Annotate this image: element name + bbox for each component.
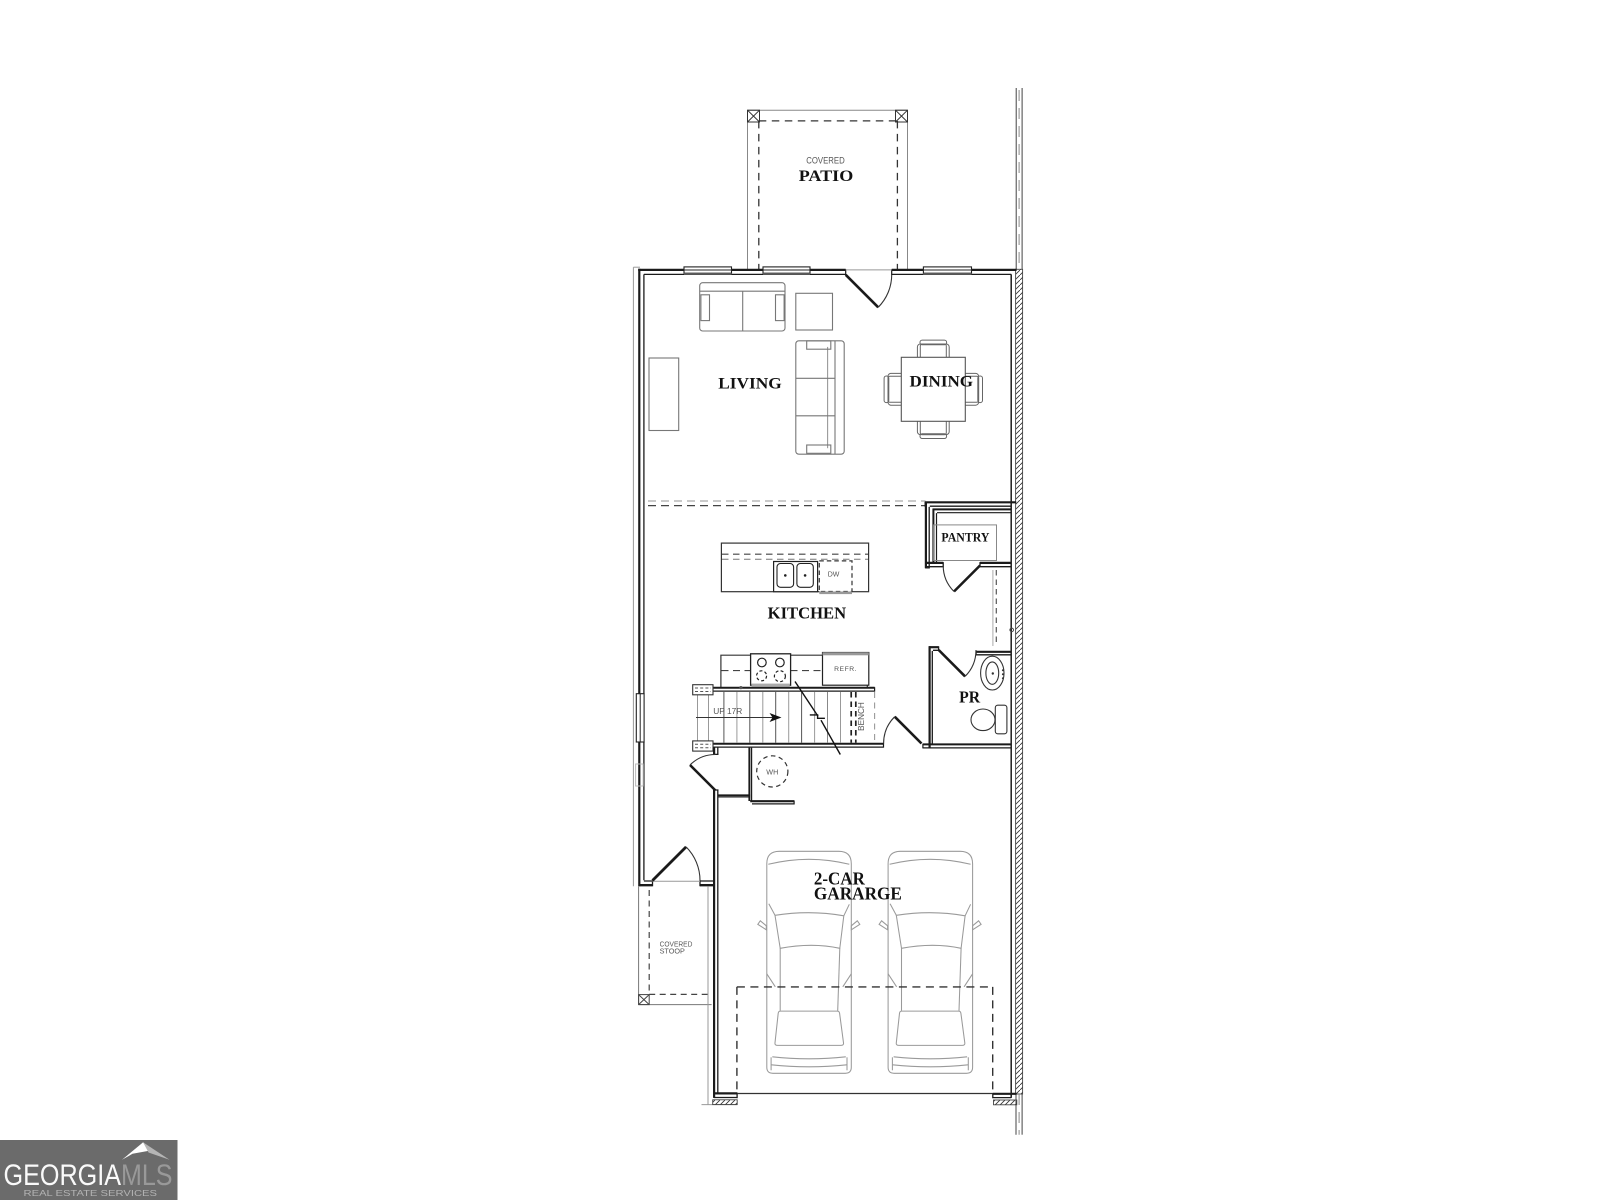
svg-text:KITCHEN: KITCHEN — [768, 604, 847, 623]
svg-text:UP 17R: UP 17R — [713, 707, 742, 716]
svg-text:PR: PR — [959, 687, 981, 706]
svg-text:REFR.: REFR. — [834, 666, 857, 673]
svg-text:PATIO: PATIO — [799, 168, 854, 185]
svg-text:BENCH: BENCH — [857, 702, 866, 731]
svg-text:DINING: DINING — [910, 374, 974, 391]
svg-text:DW: DW — [828, 572, 840, 579]
svg-text:LIVING: LIVING — [718, 376, 782, 393]
svg-text:REAL ESTATE SERVICES: REAL ESTATE SERVICES — [24, 1189, 158, 1198]
svg-text:MLS: MLS — [121, 1159, 173, 1192]
svg-text:GARARGE: GARARGE — [814, 884, 902, 904]
svg-text:GEORGIA: GEORGIA — [4, 1159, 122, 1192]
svg-text:COVERED: COVERED — [806, 156, 845, 166]
svg-text:PANTRY: PANTRY — [941, 531, 989, 545]
svg-text:STOOP: STOOP — [660, 947, 685, 956]
svg-text:WH: WH — [766, 767, 778, 776]
